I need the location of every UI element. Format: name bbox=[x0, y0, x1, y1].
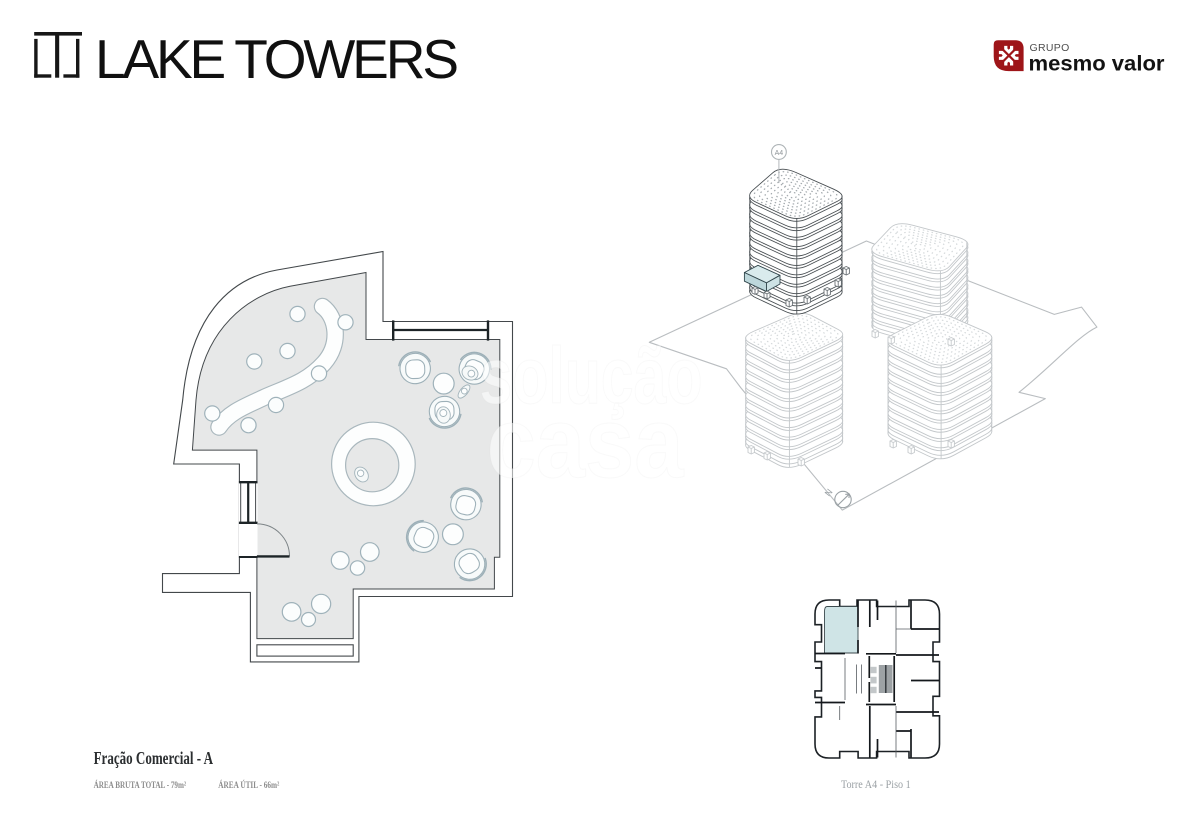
svg-text:Fração Comercial - A: Fração Comercial - A bbox=[94, 748, 214, 768]
svg-text:casa: casa bbox=[487, 387, 685, 499]
svg-text:Torre A4 - Piso 1: Torre A4 - Piso 1 bbox=[841, 777, 911, 791]
svg-text:N: N bbox=[823, 487, 835, 498]
svg-text:ÁREA ÚTIL - 66m²: ÁREA ÚTIL - 66m² bbox=[218, 779, 279, 791]
svg-text:mesmo valor: mesmo valor bbox=[1029, 52, 1166, 76]
svg-text:A4: A4 bbox=[775, 150, 784, 157]
svg-text:LAKE TOWERS: LAKE TOWERS bbox=[95, 28, 459, 88]
svg-text:ÁREA BRUTA TOTAL - 79m²: ÁREA BRUTA TOTAL - 79m² bbox=[94, 779, 187, 791]
